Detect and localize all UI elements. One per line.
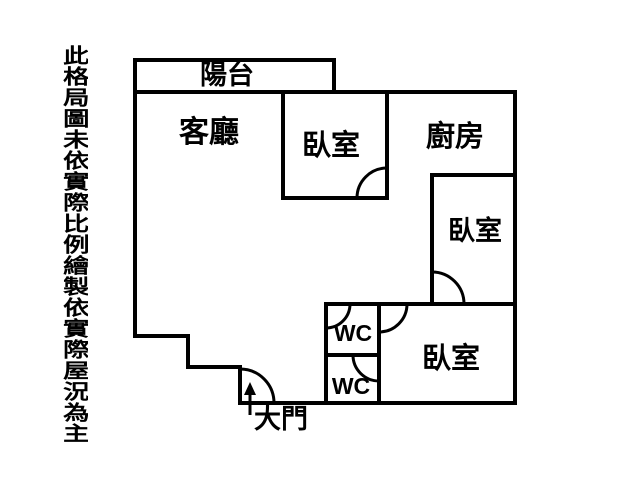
bedroom-right-door-arc xyxy=(432,272,464,304)
room-label-bedroom-top: 臥室 xyxy=(302,128,360,162)
room-label-wc-lower: WC xyxy=(332,373,370,399)
floor-plan-page: 此格局圖未依實際比例繪製依實際屋況為主 陽台 客廳 臥室 廚房 xyxy=(0,0,640,480)
bedroom-top-door-arc xyxy=(357,168,387,198)
room-label-bedroom-bottom: 臥室 xyxy=(422,341,480,375)
floor-plan: 陽台 客廳 臥室 廚房 臥室 WC WC 臥室 大門 xyxy=(0,0,640,480)
room-label-kitchen: 廚房 xyxy=(426,119,484,153)
room-label-entrance: 大門 xyxy=(254,404,308,434)
room-label-bedroom-right: 臥室 xyxy=(448,215,502,246)
room-label-living-room: 客廳 xyxy=(179,115,239,149)
entrance-door-arc xyxy=(240,369,274,403)
room-label-balcony: 陽台 xyxy=(200,59,254,90)
bedroom-bottom-door-arc xyxy=(379,304,407,332)
room-label-wc-upper: WC xyxy=(334,320,372,346)
